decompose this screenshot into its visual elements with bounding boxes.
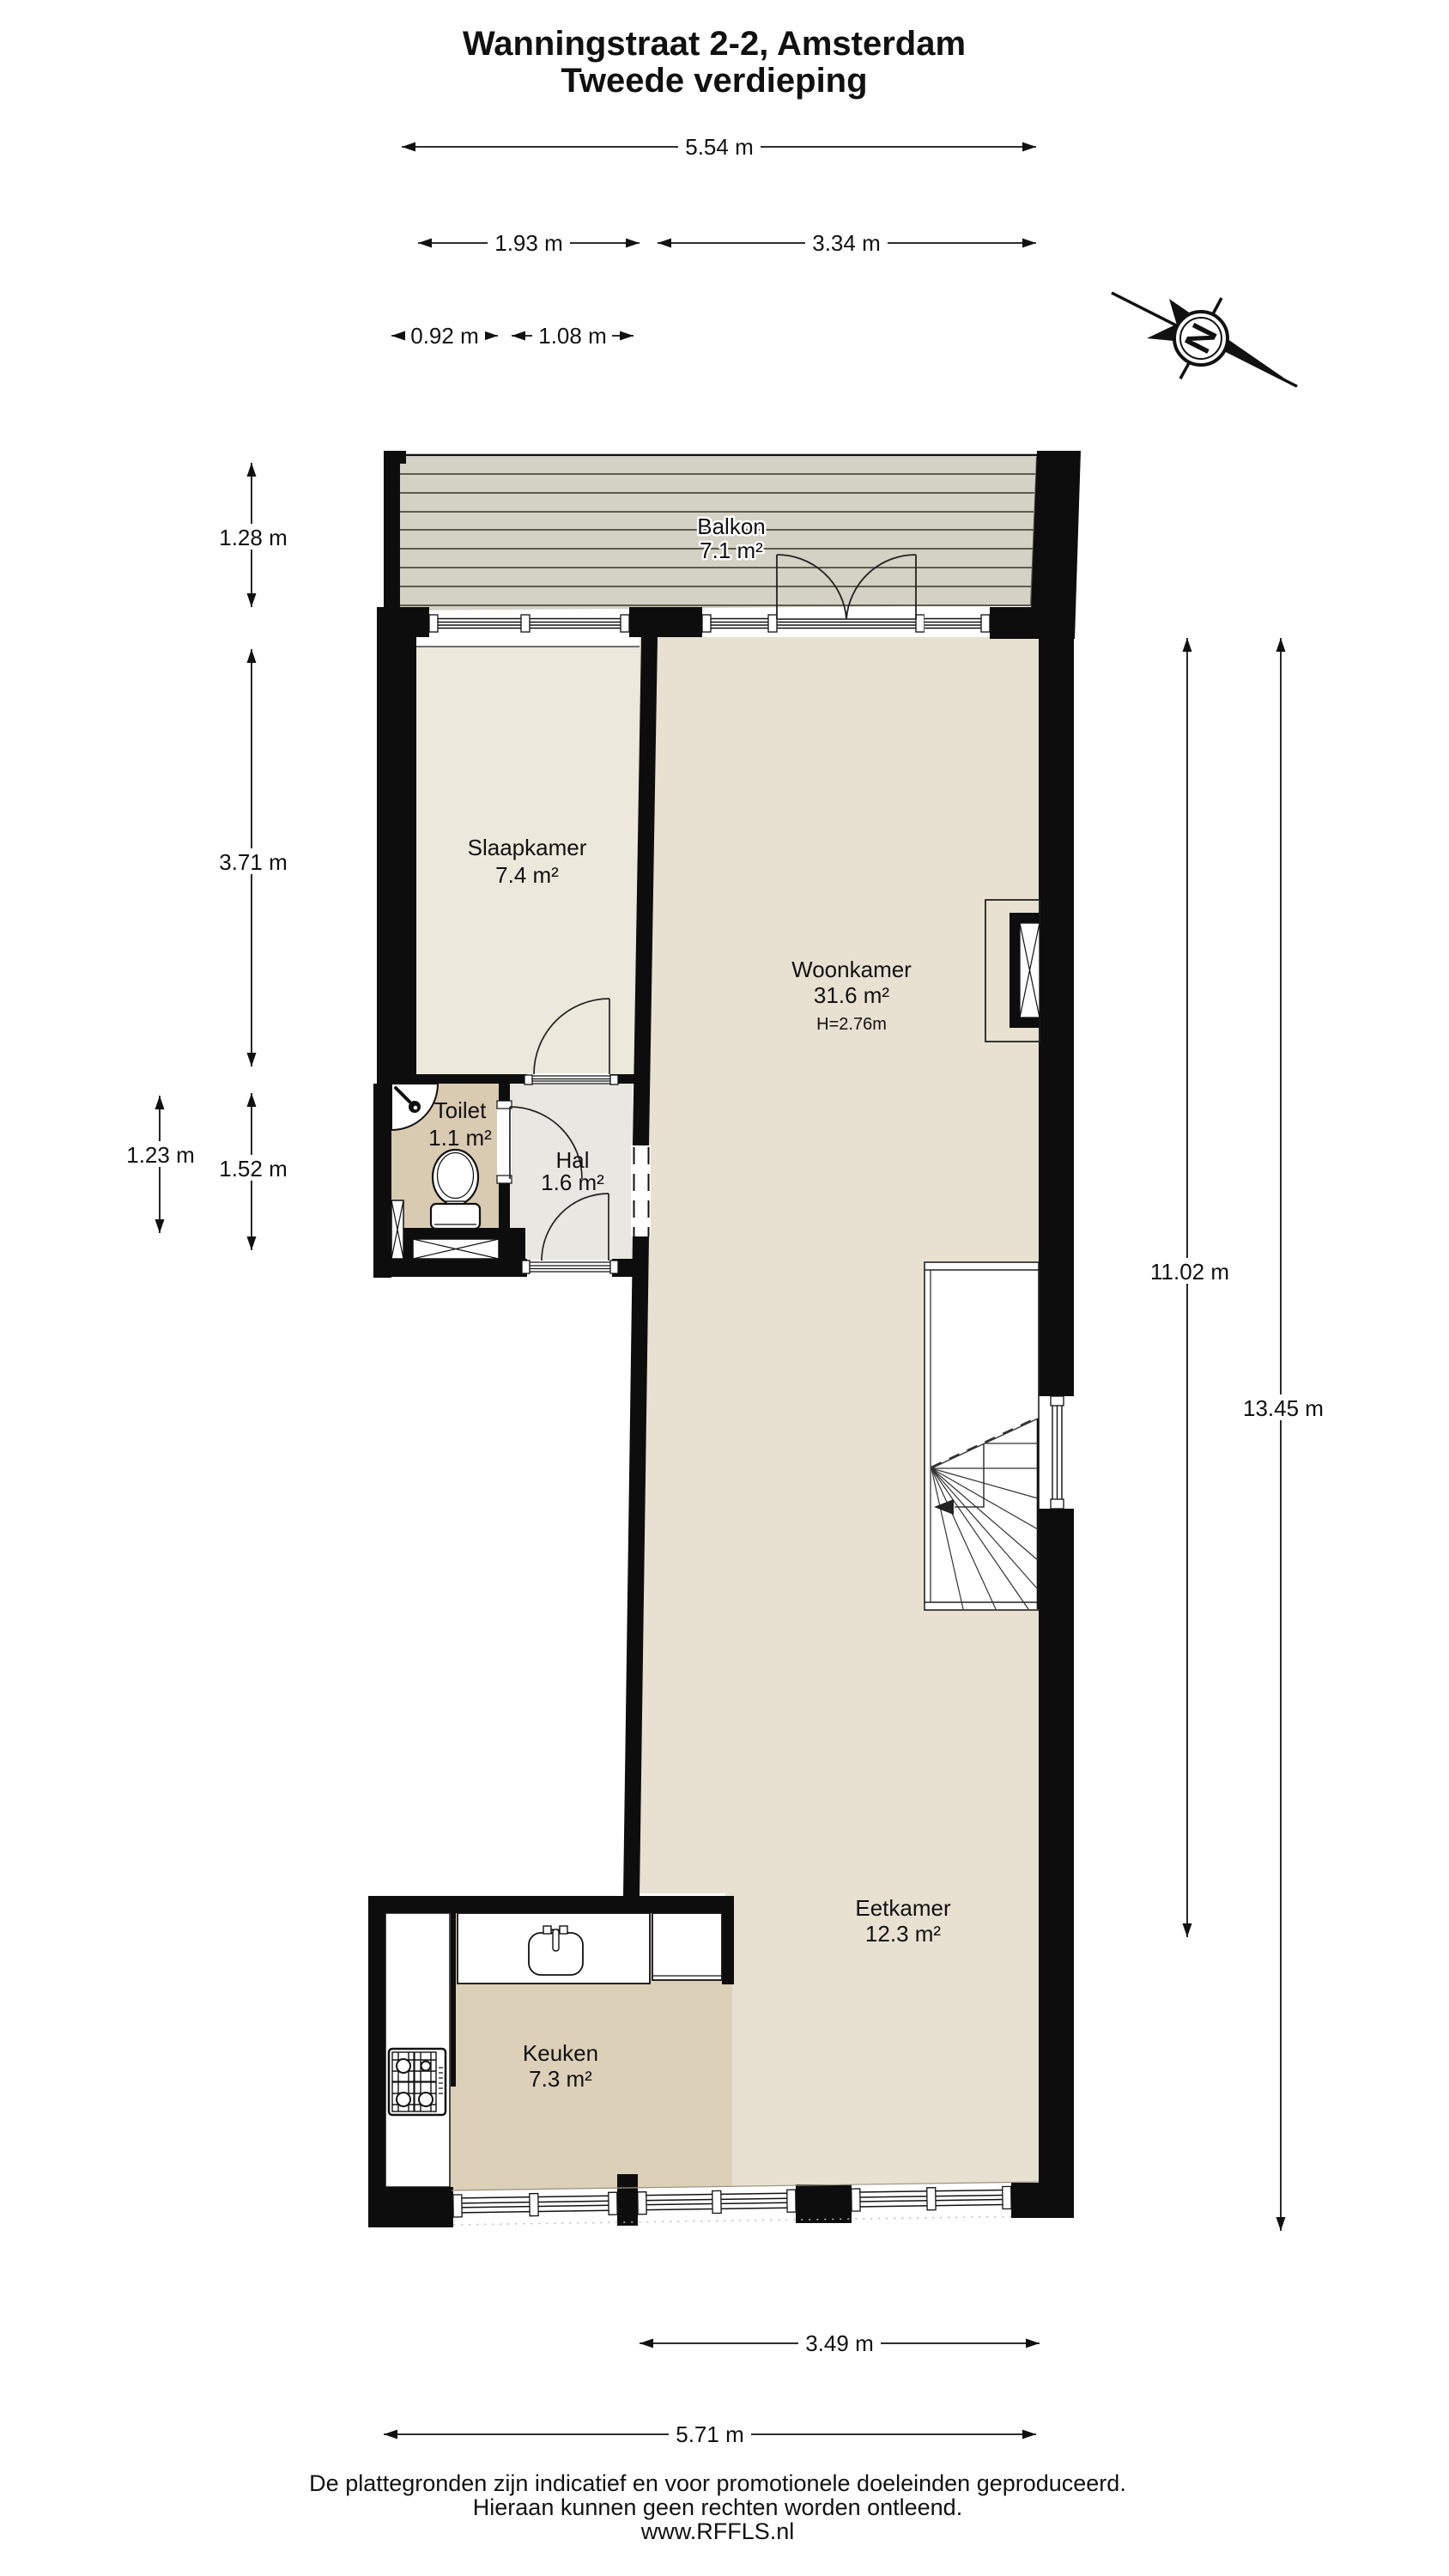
- svg-text:1.1 m²: 1.1 m²: [428, 1125, 492, 1151]
- svg-text:1.93 m: 1.93 m: [494, 230, 563, 256]
- svg-text:De plattegronden zijn indicati: De plattegronden zijn indicatief en voor…: [309, 2470, 1126, 2496]
- svg-text:7.4 m²: 7.4 m²: [495, 862, 559, 888]
- svg-text:12.3 m²: 12.3 m²: [865, 1921, 941, 1947]
- svg-text:Hieraan kunnen geen rechten wo: Hieraan kunnen geen rechten worden ontle…: [473, 2494, 962, 2520]
- svg-text:5.54 m: 5.54 m: [685, 134, 754, 160]
- svg-text:Eetkamer: Eetkamer: [855, 1895, 951, 1921]
- svg-text:0.92 m: 0.92 m: [410, 323, 479, 349]
- svg-text:1.28 m: 1.28 m: [219, 525, 288, 550]
- svg-text:3.49 m: 3.49 m: [805, 2330, 874, 2356]
- svg-text:Keuken: Keuken: [523, 2040, 598, 2066]
- svg-text:H=2.76m: H=2.76m: [816, 1015, 887, 1034]
- svg-text:5.71 m: 5.71 m: [676, 2421, 744, 2447]
- svg-text:1.52 m: 1.52 m: [219, 1156, 288, 1182]
- svg-text:13.45 m: 13.45 m: [1243, 1395, 1324, 1421]
- svg-text:11.02 m: 11.02 m: [1150, 1259, 1229, 1285]
- svg-text:Tweede verdieping: Tweede verdieping: [561, 62, 867, 100]
- svg-text:1.08 m: 1.08 m: [538, 323, 607, 349]
- svg-text:31.6 m²: 31.6 m²: [814, 982, 889, 1008]
- svg-text:3.71 m: 3.71 m: [219, 849, 288, 875]
- svg-text:Balkon: Balkon: [697, 513, 766, 539]
- svg-text:Slaapkamer: Slaapkamer: [468, 835, 587, 860]
- svg-text:Toilet: Toilet: [434, 1097, 487, 1123]
- svg-text:Woonkamer: Woonkamer: [791, 957, 912, 982]
- svg-text:Wanningstraat 2-2, Amsterdam: Wanningstraat 2-2, Amsterdam: [463, 25, 966, 63]
- svg-text:1.6 m²: 1.6 m²: [541, 1170, 604, 1195]
- svg-text:7.1 m²: 7.1 m²: [700, 538, 763, 563]
- svg-text:7.3 m²: 7.3 m²: [529, 2066, 592, 2092]
- svg-text:www.RFFLS.nl: www.RFFLS.nl: [640, 2518, 795, 2544]
- svg-text:1.23 m: 1.23 m: [126, 1142, 195, 1168]
- svg-text:3.34 m: 3.34 m: [812, 230, 881, 256]
